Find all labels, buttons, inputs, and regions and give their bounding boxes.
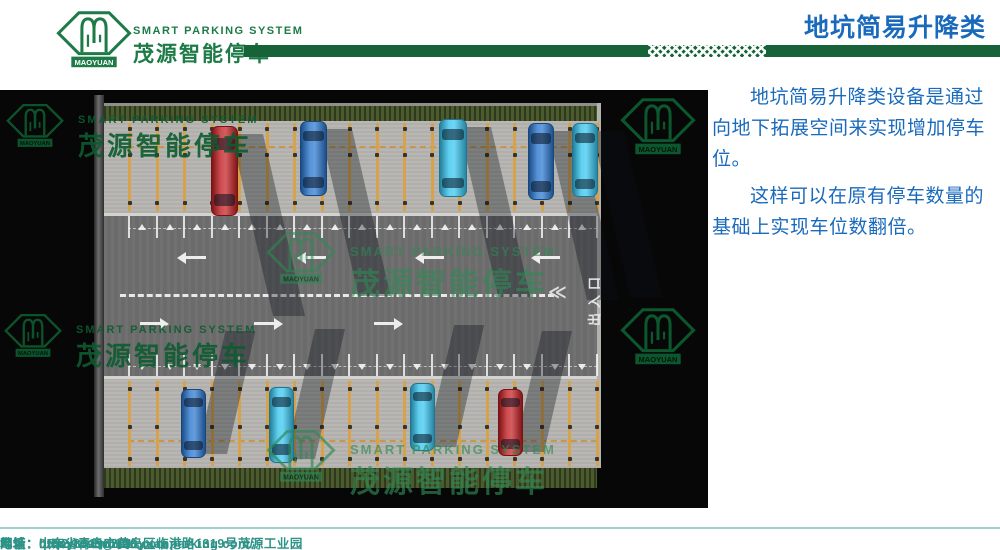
car-rear-window xyxy=(531,181,551,192)
road-t-triangle xyxy=(221,224,229,230)
car-rear-window xyxy=(442,178,463,189)
footer-website: 网址：http://www.maoyuanparking.com/ xyxy=(0,533,254,550)
car xyxy=(181,389,206,458)
road-t-triangle xyxy=(523,364,531,370)
road-t-triangle xyxy=(413,364,421,370)
parking-bumper-dot xyxy=(458,201,462,205)
company-logo-icon: MAOYUAN xyxy=(56,9,132,71)
parking-bumper-dot xyxy=(403,201,407,205)
watermark: MAOYUANSMART PARKING SYSTEM茂源智能停车 xyxy=(6,102,326,155)
car-windshield xyxy=(531,133,551,144)
parking-bumper-dot xyxy=(375,127,379,131)
road-t-mark xyxy=(431,354,433,376)
parking-slot-line xyxy=(431,123,434,211)
watermark: MAOYUAN xyxy=(620,306,708,373)
parking-bumper-dot xyxy=(430,153,434,157)
watermark-texts: SMART PARKING SYSTEM茂源智能停车 xyxy=(76,324,256,373)
parking-bumper-dot xyxy=(210,457,214,461)
parking-bumper-dot xyxy=(265,387,269,391)
watermark-logo-icon: MAOYUAN xyxy=(620,96,696,158)
road-t-triangle xyxy=(358,364,366,370)
parking-bumper-dot xyxy=(128,425,132,429)
svg-text:MAOYUAN: MAOYUAN xyxy=(20,141,50,147)
watermark-text-cn: 茂源智能停车 xyxy=(350,259,556,303)
parking-bumper-dot xyxy=(568,387,572,391)
road-t-mark xyxy=(403,354,405,376)
watermark-text-cn: 茂源智能停车 xyxy=(76,336,256,373)
logo-brand-text: MAOYUAN xyxy=(75,58,114,67)
slide: MAOYUAN SMART PARKING SYSTEM 茂源智能停车 地坑简易… xyxy=(0,0,1000,550)
watermark-logo-icon: MAOYUAN xyxy=(620,306,696,368)
watermark-logo-icon: MAOYUAN xyxy=(4,312,62,360)
watermark: MAOYUAN xyxy=(620,96,708,163)
car xyxy=(528,123,554,200)
parking-bumper-dot xyxy=(155,425,159,429)
road-t-mark xyxy=(486,354,488,376)
description-paragraph: 这样可以在原有停车数量的基础上实现车位数翻倍。 xyxy=(712,181,994,243)
car-windshield xyxy=(575,133,595,143)
parking-bumper-dot xyxy=(128,387,132,391)
header-divider-bar xyxy=(244,45,1000,57)
road-t-mark xyxy=(156,216,158,238)
parking-bumper-dot xyxy=(375,153,379,157)
exit-sign: 出入口 xyxy=(584,266,600,326)
road-t-triangle xyxy=(496,364,504,370)
parking-bumper-dot xyxy=(513,127,517,131)
svg-text:MAOYUAN: MAOYUAN xyxy=(283,276,319,283)
car-windshield xyxy=(184,398,203,407)
description-block: 地坑简易升降类设备是通过向地下拓展空间来实现增加停车位。 这样可以在原有停车数量… xyxy=(712,82,994,249)
road-t-mark xyxy=(376,354,378,376)
divider-lattice-pattern xyxy=(648,45,766,57)
watermark-text-en: SMART PARKING SYSTEM xyxy=(78,114,258,126)
brand-en: SMART PARKING SYSTEM xyxy=(133,25,303,37)
road-t-triangle xyxy=(166,224,174,230)
watermark-text-en: SMART PARKING SYSTEM xyxy=(350,442,556,457)
lane-arrow xyxy=(186,256,206,259)
parking-bumper-dot xyxy=(403,127,407,131)
parking-slot-line xyxy=(596,381,599,466)
lane-arrow xyxy=(374,322,394,325)
parking-bumper-dot xyxy=(375,201,379,205)
svg-text:MAOYUAN: MAOYUAN xyxy=(639,145,678,154)
watermark-logo-icon: MAOYUAN xyxy=(266,230,336,287)
car-windshield xyxy=(501,398,520,407)
parking-slot-line xyxy=(513,123,516,211)
watermark-text-cn: 茂源智能停车 xyxy=(78,126,258,163)
watermark-text-cn: 茂源智能停车 xyxy=(350,457,556,501)
page-title: 地坑简易升降类 xyxy=(804,8,986,44)
footer-divider xyxy=(0,527,1000,529)
road-t-triangle xyxy=(386,364,394,370)
parking-bumper-dot xyxy=(430,127,434,131)
svg-text:MAOYUAN: MAOYUAN xyxy=(18,351,48,357)
parking-bumper-dot xyxy=(485,387,489,391)
parking-bumper-dot xyxy=(128,201,132,205)
parking-bumper-dot xyxy=(128,457,132,461)
parking-bumper-dot xyxy=(403,153,407,157)
watermark-text-en: SMART PARKING SYSTEM xyxy=(76,324,256,336)
parking-bumper-dot xyxy=(155,457,159,461)
parking-bumper-dot xyxy=(293,201,297,205)
parking-slot-line xyxy=(156,381,159,466)
road-t-mark xyxy=(513,354,515,376)
parking-bumper-dot xyxy=(403,387,407,391)
road-t-mark xyxy=(183,216,185,238)
car-windshield xyxy=(413,392,432,401)
watermark-logo-icon: MAOYUAN xyxy=(6,102,64,150)
road-t-triangle xyxy=(138,224,146,230)
parking-bumper-dot xyxy=(348,387,352,391)
watermark-text-en: SMART PARKING SYSTEM xyxy=(350,244,556,259)
parking-bumper-dot xyxy=(155,387,159,391)
watermark: MAOYUANSMART PARKING SYSTEM茂源智能停车 xyxy=(4,312,324,365)
car xyxy=(439,119,467,197)
car-rear-window xyxy=(214,194,235,206)
car-windshield xyxy=(442,129,463,140)
svg-text:MAOYUAN: MAOYUAN xyxy=(639,355,678,364)
parking-bumper-dot xyxy=(238,457,242,461)
parking-slot-line xyxy=(376,123,379,211)
svg-text:MAOYUAN: MAOYUAN xyxy=(283,474,319,481)
car-windshield xyxy=(272,397,291,407)
road-t-mark xyxy=(596,354,598,376)
parking-bumper-dot xyxy=(320,201,324,205)
parking-bumper-dot xyxy=(155,201,159,205)
road-t-mark xyxy=(568,354,570,376)
parking-bumper-dot xyxy=(595,457,599,461)
road-t-mark xyxy=(348,354,350,376)
watermark: MAOYUANSMART PARKING SYSTEM茂源智能停车 xyxy=(266,230,586,292)
road-t-triangle xyxy=(578,364,586,370)
car-rear-window xyxy=(184,441,203,450)
parking-bumper-dot xyxy=(595,387,599,391)
road-t-mark xyxy=(211,216,213,238)
car-rear-window xyxy=(303,177,324,187)
car-rear-window xyxy=(575,179,595,189)
parking-bumper-dot xyxy=(238,201,242,205)
watermark-texts: SMART PARKING SYSTEM茂源智能停车 xyxy=(78,114,258,163)
parking-slot-line xyxy=(128,381,131,466)
parking-bumper-dot xyxy=(513,201,517,205)
parking-bumper-dot xyxy=(513,153,517,157)
watermark-logo-icon: MAOYUAN xyxy=(266,428,336,485)
parking-slot-line xyxy=(403,123,406,211)
parking-bumper-dot xyxy=(183,201,187,205)
watermark-texts: SMART PARKING SYSTEM茂源智能停车 xyxy=(350,244,556,303)
watermark-texts: SMART PARKING SYSTEM茂源智能停车 xyxy=(350,442,556,501)
road-t-triangle xyxy=(193,224,201,230)
parking-bumper-dot xyxy=(595,425,599,429)
parking-render-image: ≪出入口MAOYUANSMART PARKING SYSTEM茂源智能停车MAO… xyxy=(0,90,708,508)
parking-bumper-dot xyxy=(430,201,434,205)
footer-website-value: http://www.maoyuanparking.com/ xyxy=(39,537,254,550)
parking-bumper-dot xyxy=(375,387,379,391)
parking-bumper-dot xyxy=(238,425,242,429)
description-paragraph: 地坑简易升降类设备是通过向地下拓展空间来实现增加停车位。 xyxy=(712,82,994,175)
watermark: MAOYUANSMART PARKING SYSTEM茂源智能停车 xyxy=(266,428,586,490)
car xyxy=(572,123,598,197)
footer-website-label: 网址： xyxy=(0,537,39,550)
road-t-mark xyxy=(238,216,240,238)
parking-bumper-dot xyxy=(540,201,544,205)
road-t-mark xyxy=(128,216,130,238)
